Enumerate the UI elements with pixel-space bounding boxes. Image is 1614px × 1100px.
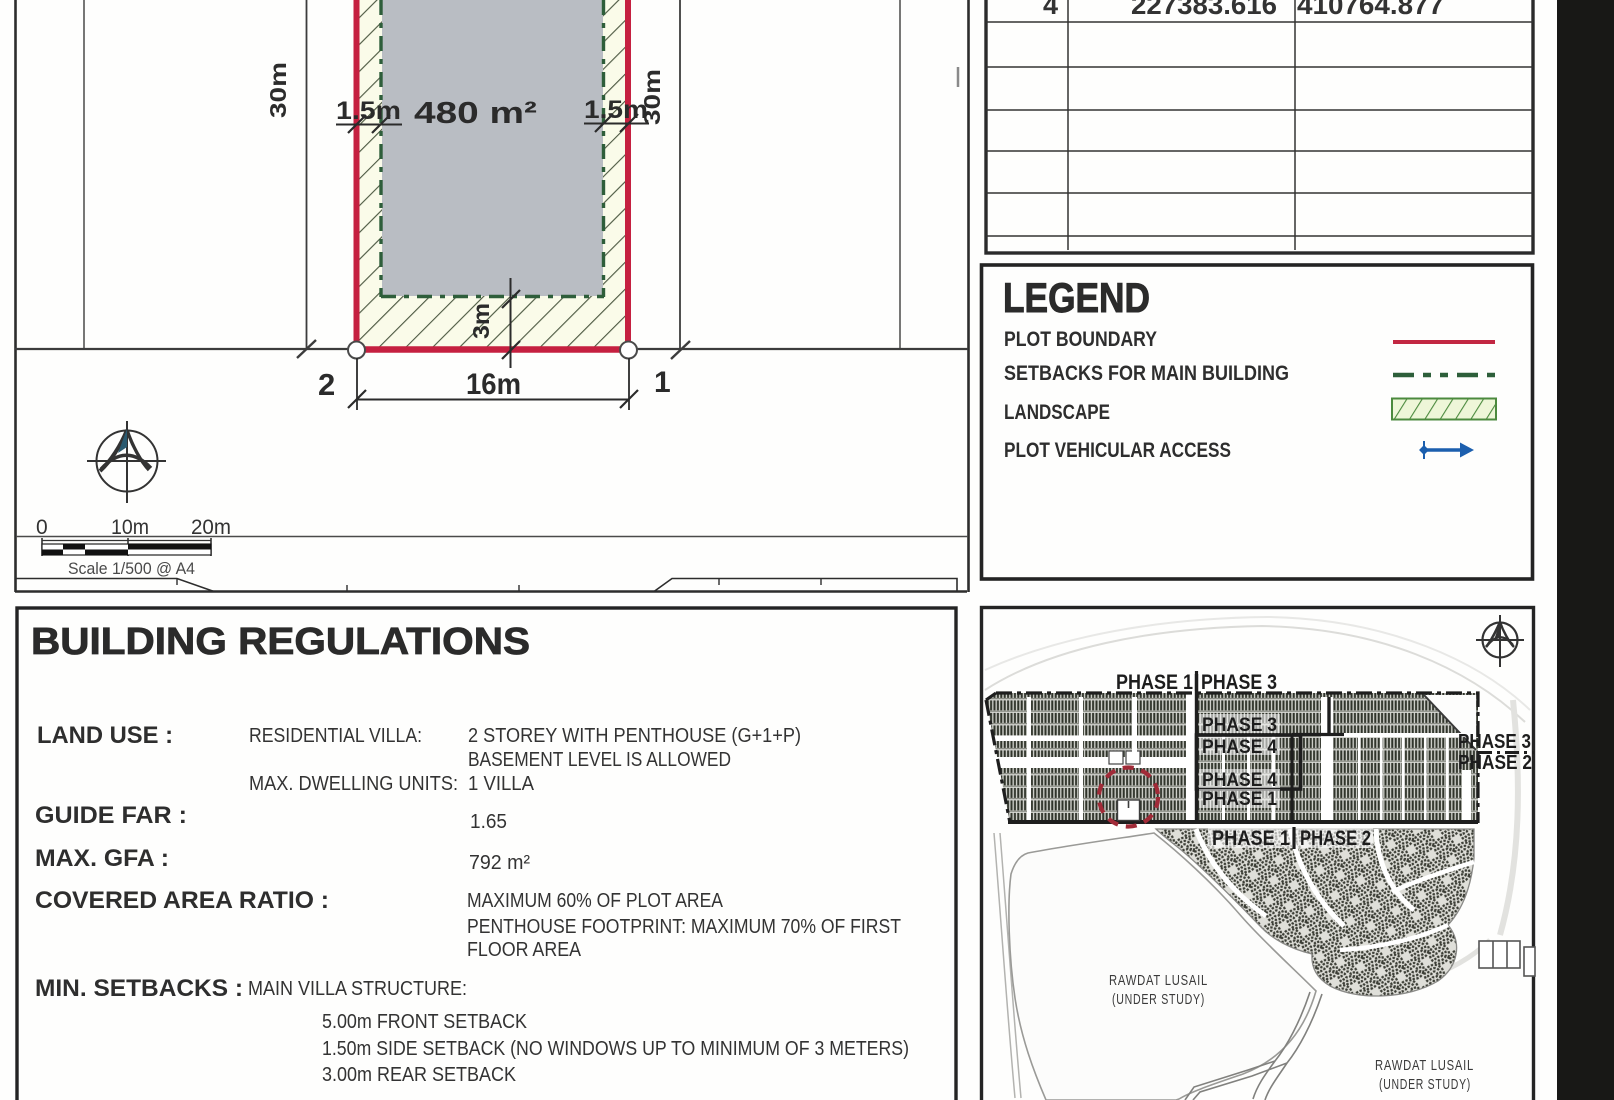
svg-text:RAWDAT LUSAIL: RAWDAT LUSAIL xyxy=(1109,973,1208,989)
svg-text:GUIDE FAR :: GUIDE FAR : xyxy=(35,802,187,829)
svg-text:3m: 3m xyxy=(468,303,494,339)
svg-text:PHASE 4: PHASE 4 xyxy=(1202,737,1277,758)
svg-text:LANDSCAPE: LANDSCAPE xyxy=(1004,401,1110,424)
svg-text:PLOT VEHICULAR ACCESS: PLOT VEHICULAR ACCESS xyxy=(1004,439,1231,462)
svg-text:1 VILLA: 1 VILLA xyxy=(468,773,535,795)
svg-text:PHASE 1: PHASE 1 xyxy=(1212,827,1290,850)
svg-text:(UNDER STUDY): (UNDER STUDY) xyxy=(1112,992,1205,1008)
svg-text:PLOT BOUNDARY: PLOT BOUNDARY xyxy=(1004,328,1157,351)
svg-text:MAX. GFA :: MAX. GFA : xyxy=(35,845,169,872)
svg-text:MAIN VILLA STRUCTURE:: MAIN VILLA STRUCTURE: xyxy=(248,978,467,1000)
svg-text:20m: 20m xyxy=(191,516,231,539)
svg-text:1.5m: 1.5m xyxy=(584,96,648,124)
svg-text:2: 2 xyxy=(318,367,335,402)
svg-text:FLOOR AREA: FLOOR AREA xyxy=(467,939,582,961)
svg-text:PHASE 3: PHASE 3 xyxy=(1458,731,1531,753)
svg-text:1.65: 1.65 xyxy=(470,811,507,833)
svg-text:MIN. SETBACKS :: MIN. SETBACKS : xyxy=(35,975,243,1002)
svg-text:30m: 30m xyxy=(265,62,291,118)
svg-text:10m: 10m xyxy=(111,516,149,539)
svg-text:PHASE 2: PHASE 2 xyxy=(1300,827,1371,850)
svg-text:RAWDAT LUSAIL: RAWDAT LUSAIL xyxy=(1375,1058,1474,1074)
svg-text:4: 4 xyxy=(1043,0,1058,20)
svg-text:LEGEND: LEGEND xyxy=(1003,274,1150,321)
svg-text:PENTHOUSE FOOTPRINT: MAXIMUM 7: PENTHOUSE FOOTPRINT: MAXIMUM 70% OF FIRS… xyxy=(467,916,901,938)
svg-text:COVERED AREA RATIO :: COVERED AREA RATIO : xyxy=(35,887,329,914)
svg-text:LAND USE :: LAND USE : xyxy=(37,722,173,749)
svg-text:PHASE 3: PHASE 3 xyxy=(1201,671,1277,694)
svg-text:2 STOREY WITH PENTHOUSE (G+1+: 2 STOREY WITH PENTHOUSE (G+1+P) xyxy=(468,725,801,747)
svg-text:SETBACKS FOR MAIN BUILDING: SETBACKS FOR MAIN BUILDING xyxy=(1004,362,1289,385)
svg-text:3.00m REAR SETBACK: 3.00m REAR SETBACK xyxy=(322,1064,517,1086)
svg-text:0: 0 xyxy=(36,516,48,539)
svg-text:PHASE 4: PHASE 4 xyxy=(1202,770,1277,791)
svg-text:1.50m SIDE SETBACK (NO WINDOWS: 1.50m SIDE SETBACK (NO WINDOWS UP TO MIN… xyxy=(322,1038,909,1060)
svg-text:PHASE 1: PHASE 1 xyxy=(1116,671,1193,694)
svg-text:1: 1 xyxy=(654,366,671,399)
svg-text:480 m²: 480 m² xyxy=(414,95,537,130)
svg-text:Scale 1/500 @ A4: Scale 1/500 @ A4 xyxy=(68,559,195,578)
svg-text:410764.877: 410764.877 xyxy=(1297,0,1444,20)
svg-text:(UNDER STUDY): (UNDER STUDY) xyxy=(1379,1077,1471,1093)
svg-text:16m: 16m xyxy=(466,368,521,401)
svg-text:PHASE 3: PHASE 3 xyxy=(1202,715,1277,736)
svg-text:227383.616: 227383.616 xyxy=(1131,0,1277,20)
svg-text:MAXIMUM 60% OF PLOT AREA: MAXIMUM 60% OF PLOT AREA xyxy=(467,890,724,912)
svg-text:1.5m: 1.5m xyxy=(336,97,401,125)
svg-text:PHASE 2: PHASE 2 xyxy=(1458,752,1532,774)
svg-text:792 m²: 792 m² xyxy=(469,852,530,874)
svg-text:PHASE 1: PHASE 1 xyxy=(1202,789,1277,810)
svg-text:BUILDING REGULATIONS: BUILDING REGULATIONS xyxy=(31,621,530,663)
svg-text:RESIDENTIAL VILLA:: RESIDENTIAL VILLA: xyxy=(249,725,422,747)
svg-text:BASEMENT LEVEL IS ALLOWED: BASEMENT LEVEL IS ALLOWED xyxy=(468,749,731,771)
svg-text:MAX. DWELLING UNITS:: MAX. DWELLING UNITS: xyxy=(249,773,458,795)
svg-text:5.00m FRONT SETBACK: 5.00m FRONT SETBACK xyxy=(322,1011,528,1033)
